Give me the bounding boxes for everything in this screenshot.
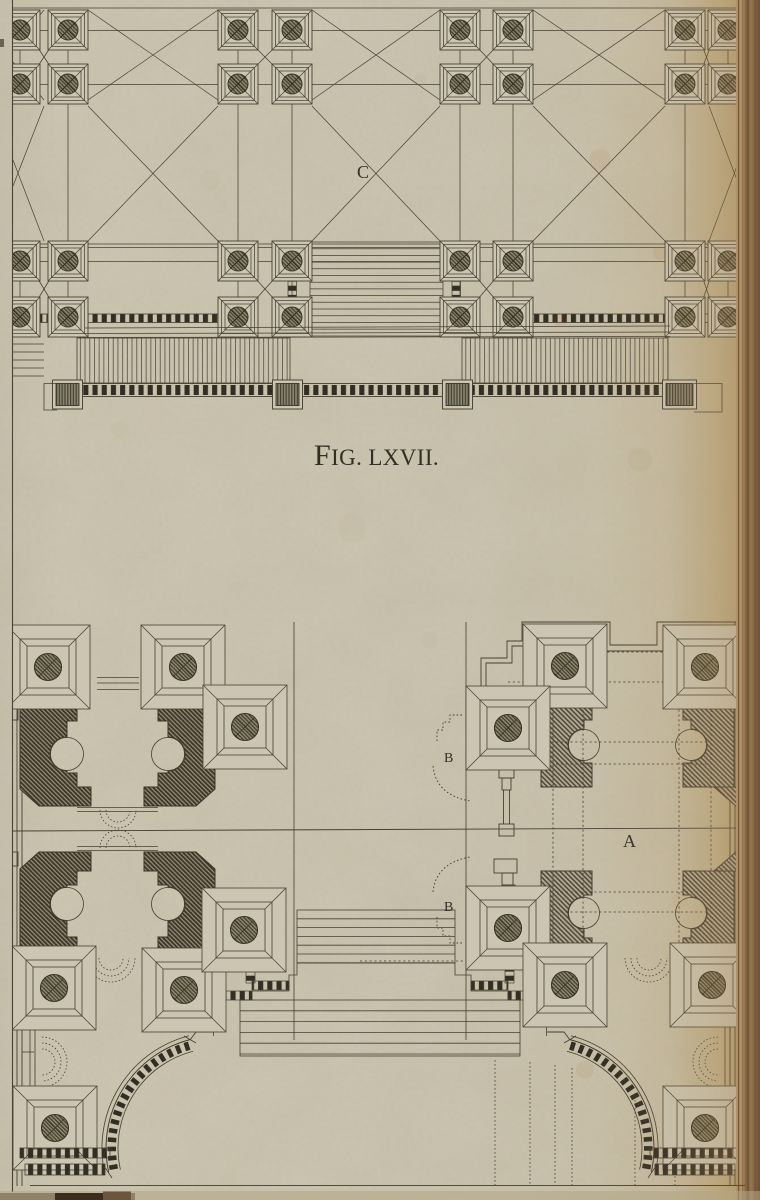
svg-text:B: B <box>444 751 453 766</box>
svg-text:C: C <box>357 162 370 182</box>
svg-text:B: B <box>444 900 453 915</box>
